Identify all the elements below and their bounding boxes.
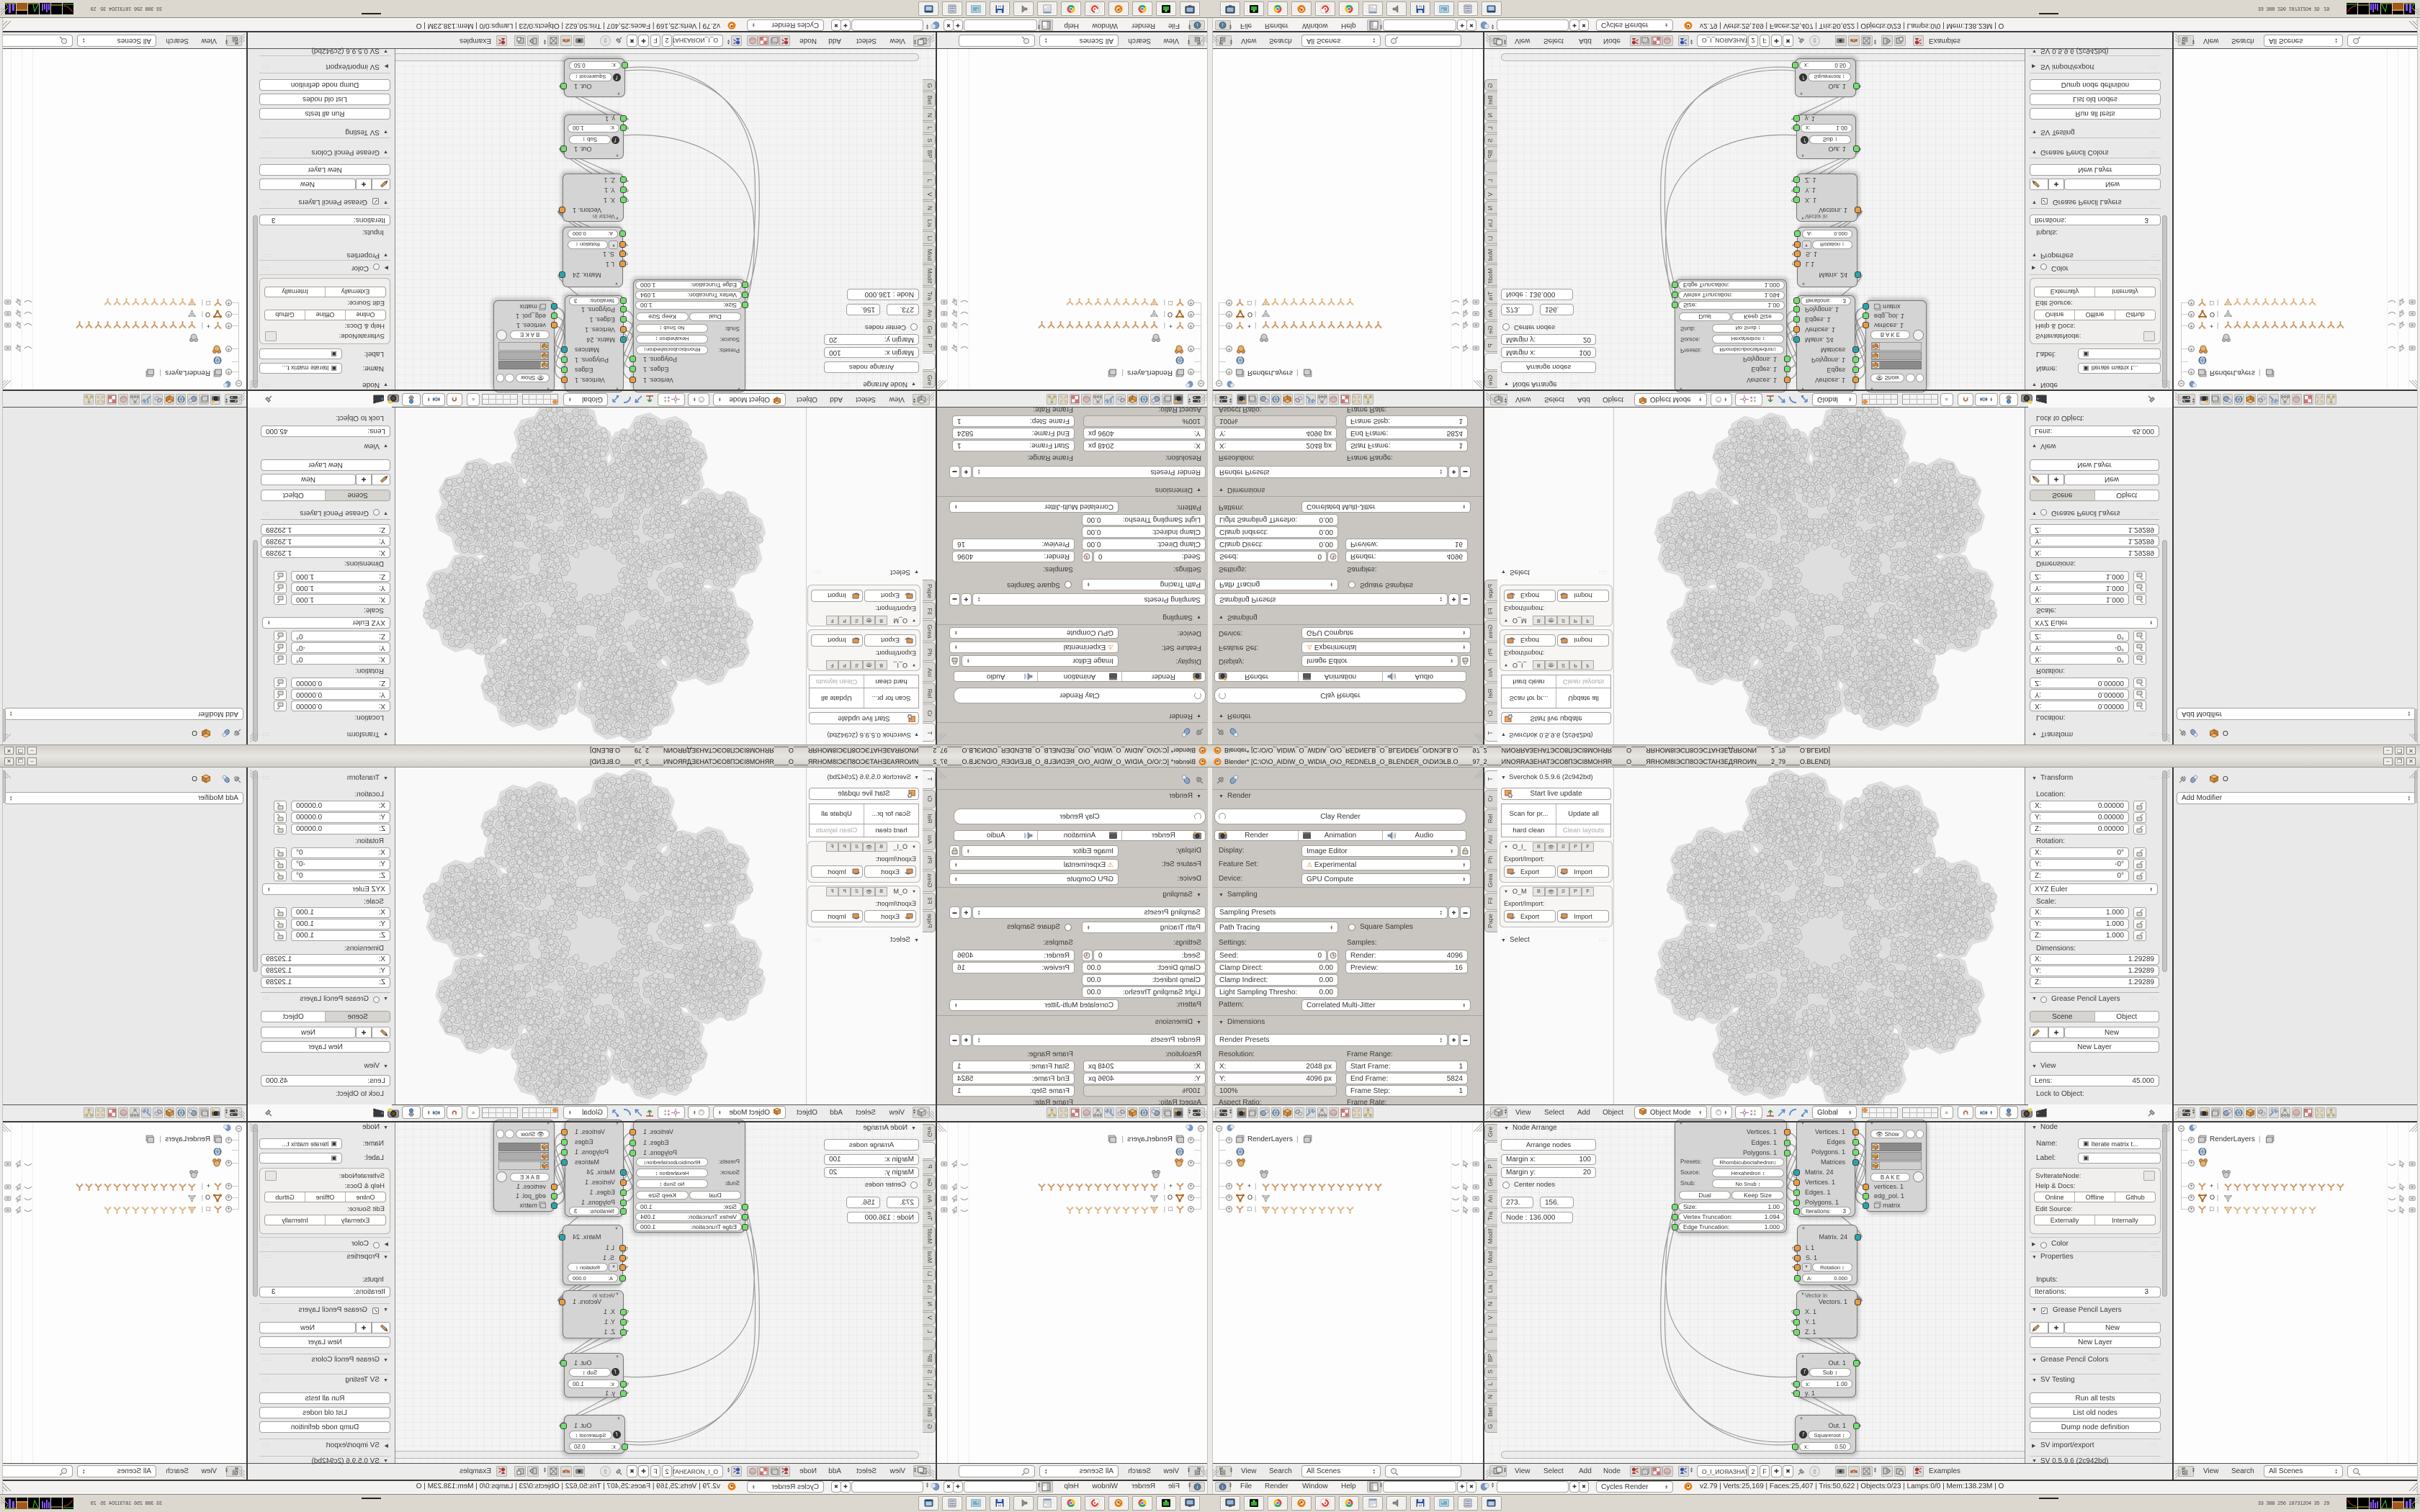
svg-text:i: i [1222, 1485, 1224, 1490]
svg-text:64: 64 [1418, 1504, 1422, 1508]
